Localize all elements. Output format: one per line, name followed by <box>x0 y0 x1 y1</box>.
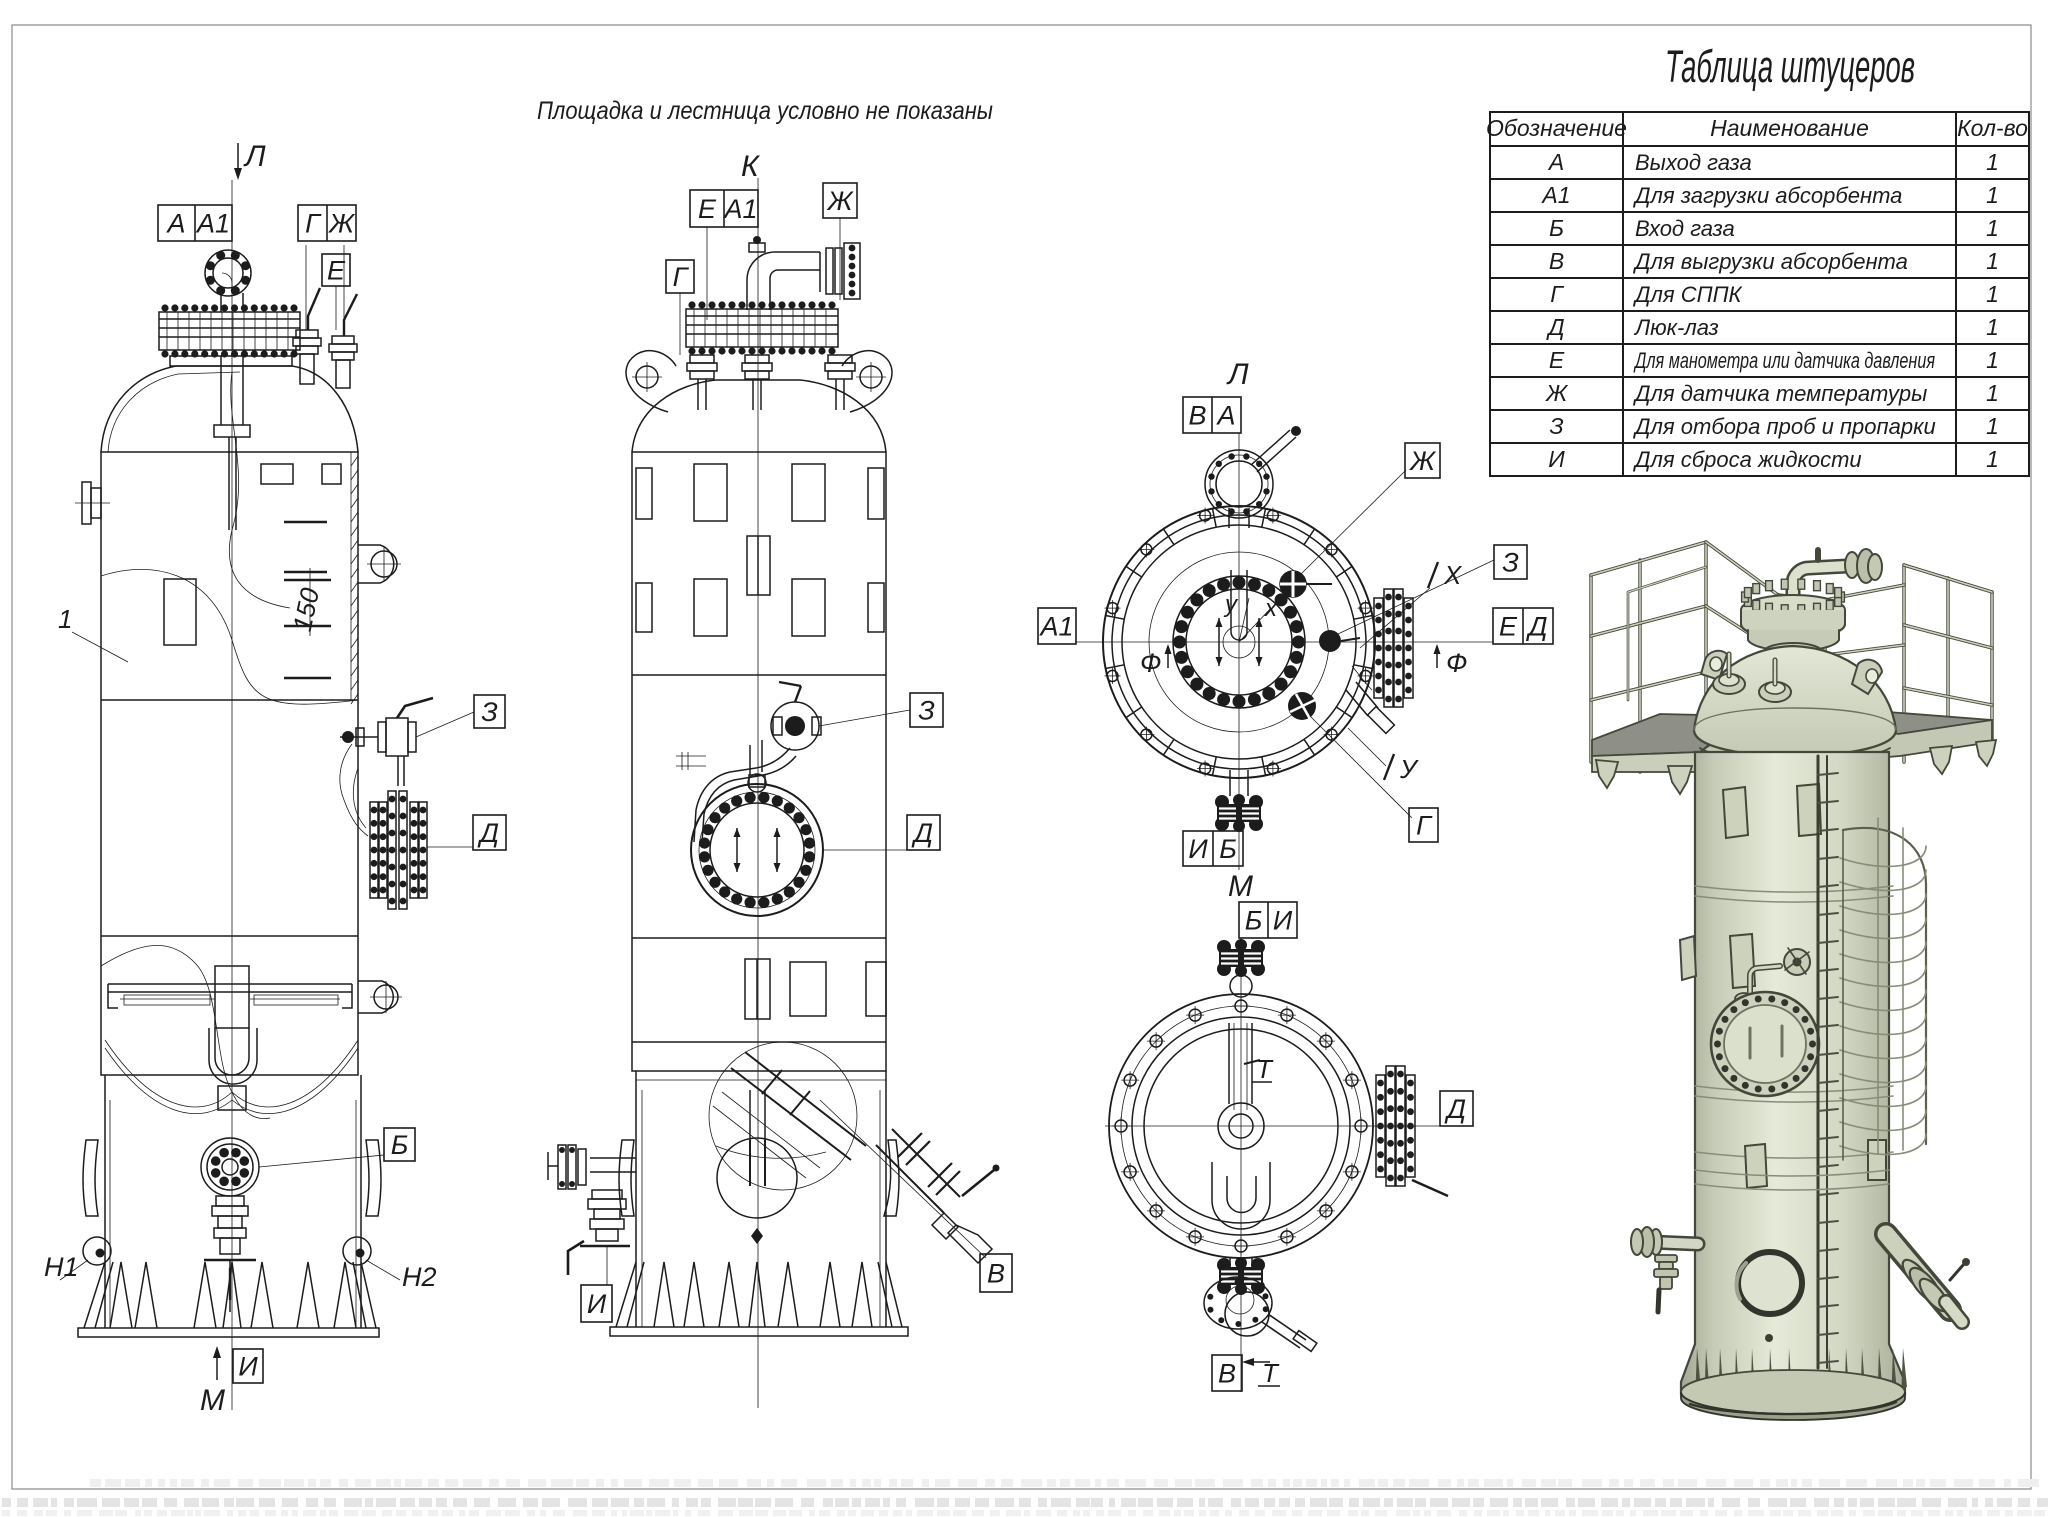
svg-text:Обозначение: Обозначение <box>1486 115 1627 141</box>
svg-text:Выход газа: Выход газа <box>1635 150 1752 175</box>
svg-text:А: А <box>1547 149 1564 175</box>
svg-text:З: З <box>1549 413 1563 439</box>
svg-text:В: В <box>1218 1359 1236 1389</box>
svg-text:Люк-лаз: Люк-лаз <box>1633 315 1719 340</box>
svg-text:1: 1 <box>1986 281 1999 307</box>
svg-text:Е: Е <box>698 194 717 224</box>
svg-text:1: 1 <box>1986 215 1999 241</box>
svg-text:Х: Х <box>1443 560 1463 590</box>
svg-text:А1: А1 <box>1038 612 1073 642</box>
svg-text:Д: Д <box>1525 612 1547 642</box>
svg-text:Ф: Ф <box>1446 648 1467 678</box>
svg-text:Л: Л <box>1226 358 1249 391</box>
svg-text:Наименование: Наименование <box>1710 115 1869 141</box>
svg-text:Для датчика температуры: Для датчика температуры <box>1632 381 1927 406</box>
svg-text:Ж: Ж <box>1408 446 1437 476</box>
svg-text:Б: Б <box>1245 906 1263 936</box>
svg-text:М: М <box>200 1384 225 1417</box>
svg-text:Д: Д <box>477 818 499 848</box>
svg-text:1: 1 <box>1986 380 1999 406</box>
svg-text:К: К <box>741 150 761 183</box>
svg-text:А1: А1 <box>1540 182 1570 208</box>
svg-text:1: 1 <box>58 604 72 634</box>
svg-text:З: З <box>481 697 498 727</box>
svg-text:Т: Т <box>1262 1358 1280 1388</box>
svg-text:Кол-во: Кол-во <box>1957 115 2028 141</box>
svg-text:Г: Г <box>673 262 690 292</box>
svg-text:1: 1 <box>1986 248 1999 274</box>
svg-text:Для сброса жидкости: Для сброса жидкости <box>1632 447 1862 472</box>
svg-text:Для СППК: Для СППК <box>1632 282 1743 307</box>
svg-text:Для манометра или датчика давл: Для манометра или датчика давления <box>1633 348 1935 373</box>
svg-text:1: 1 <box>1986 149 1999 175</box>
svg-text:Е: Е <box>1549 347 1565 373</box>
svg-text:Вход газа: Вход газа <box>1635 216 1735 241</box>
svg-text:у: у <box>1223 591 1239 618</box>
svg-text:И: И <box>1273 906 1293 936</box>
svg-text:В: В <box>1549 248 1564 274</box>
svg-text:А: А <box>1215 401 1235 431</box>
svg-text:Ф: Ф <box>1140 648 1161 678</box>
svg-text:М: М <box>1228 870 1253 903</box>
svg-text:А: А <box>165 209 185 239</box>
svg-text:Д: Д <box>1444 1094 1466 1124</box>
svg-text:Ж: Ж <box>327 209 356 239</box>
svg-text:В: В <box>987 1259 1005 1289</box>
svg-text:В: В <box>1188 401 1206 431</box>
svg-text:Б: Б <box>391 1130 409 1160</box>
svg-text:И: И <box>587 1289 607 1319</box>
svg-text:З: З <box>1502 548 1519 578</box>
svg-text:Г: Г <box>1416 811 1433 841</box>
svg-text:И: И <box>238 1352 258 1382</box>
svg-text:Для загрузки абсорбента: Для загрузки абсорбента <box>1632 183 1902 208</box>
svg-text:Е: Е <box>1499 612 1518 642</box>
svg-text:Таблица штуцеров: Таблица штуцеров <box>1665 41 1915 92</box>
svg-text:х: х <box>1264 595 1278 622</box>
svg-text:1: 1 <box>1986 413 1999 439</box>
svg-text:А1: А1 <box>195 209 230 239</box>
svg-text:Е: Е <box>327 256 346 286</box>
svg-text:А1: А1 <box>722 194 757 224</box>
svg-text:Ж: Ж <box>826 186 855 216</box>
svg-text:Ж: Ж <box>1545 380 1569 406</box>
svg-text:1: 1 <box>1986 347 1999 373</box>
svg-text:Л: Л <box>243 140 266 173</box>
svg-text:Н1: Н1 <box>44 1252 79 1282</box>
svg-text:Для отбора проб и пропарки: Для отбора проб и пропарки <box>1632 414 1936 439</box>
svg-text:1: 1 <box>1986 182 1999 208</box>
svg-text:Д: Д <box>1545 314 1564 340</box>
svg-text:У: У <box>1399 754 1419 784</box>
svg-text:Н2: Н2 <box>402 1262 437 1292</box>
svg-text:Площадка и лестница условно: Площадка и лестница условно не показаны <box>537 97 993 125</box>
svg-text:И: И <box>1548 446 1565 472</box>
svg-text:Д: Д <box>911 818 933 848</box>
svg-text:Для выгрузки абсорбента: Для выгрузки абсорбента <box>1632 249 1908 274</box>
svg-text:И: И <box>1188 834 1208 864</box>
svg-text:Г: Г <box>1550 281 1564 307</box>
svg-text:З: З <box>918 696 935 726</box>
svg-text:1: 1 <box>1986 314 1999 340</box>
svg-text:Б: Б <box>1549 215 1564 241</box>
svg-text:Б: Б <box>1219 834 1237 864</box>
svg-text:1: 1 <box>1986 446 1999 472</box>
svg-text:Г: Г <box>305 209 322 239</box>
svg-text:Т: Т <box>1256 1054 1274 1084</box>
